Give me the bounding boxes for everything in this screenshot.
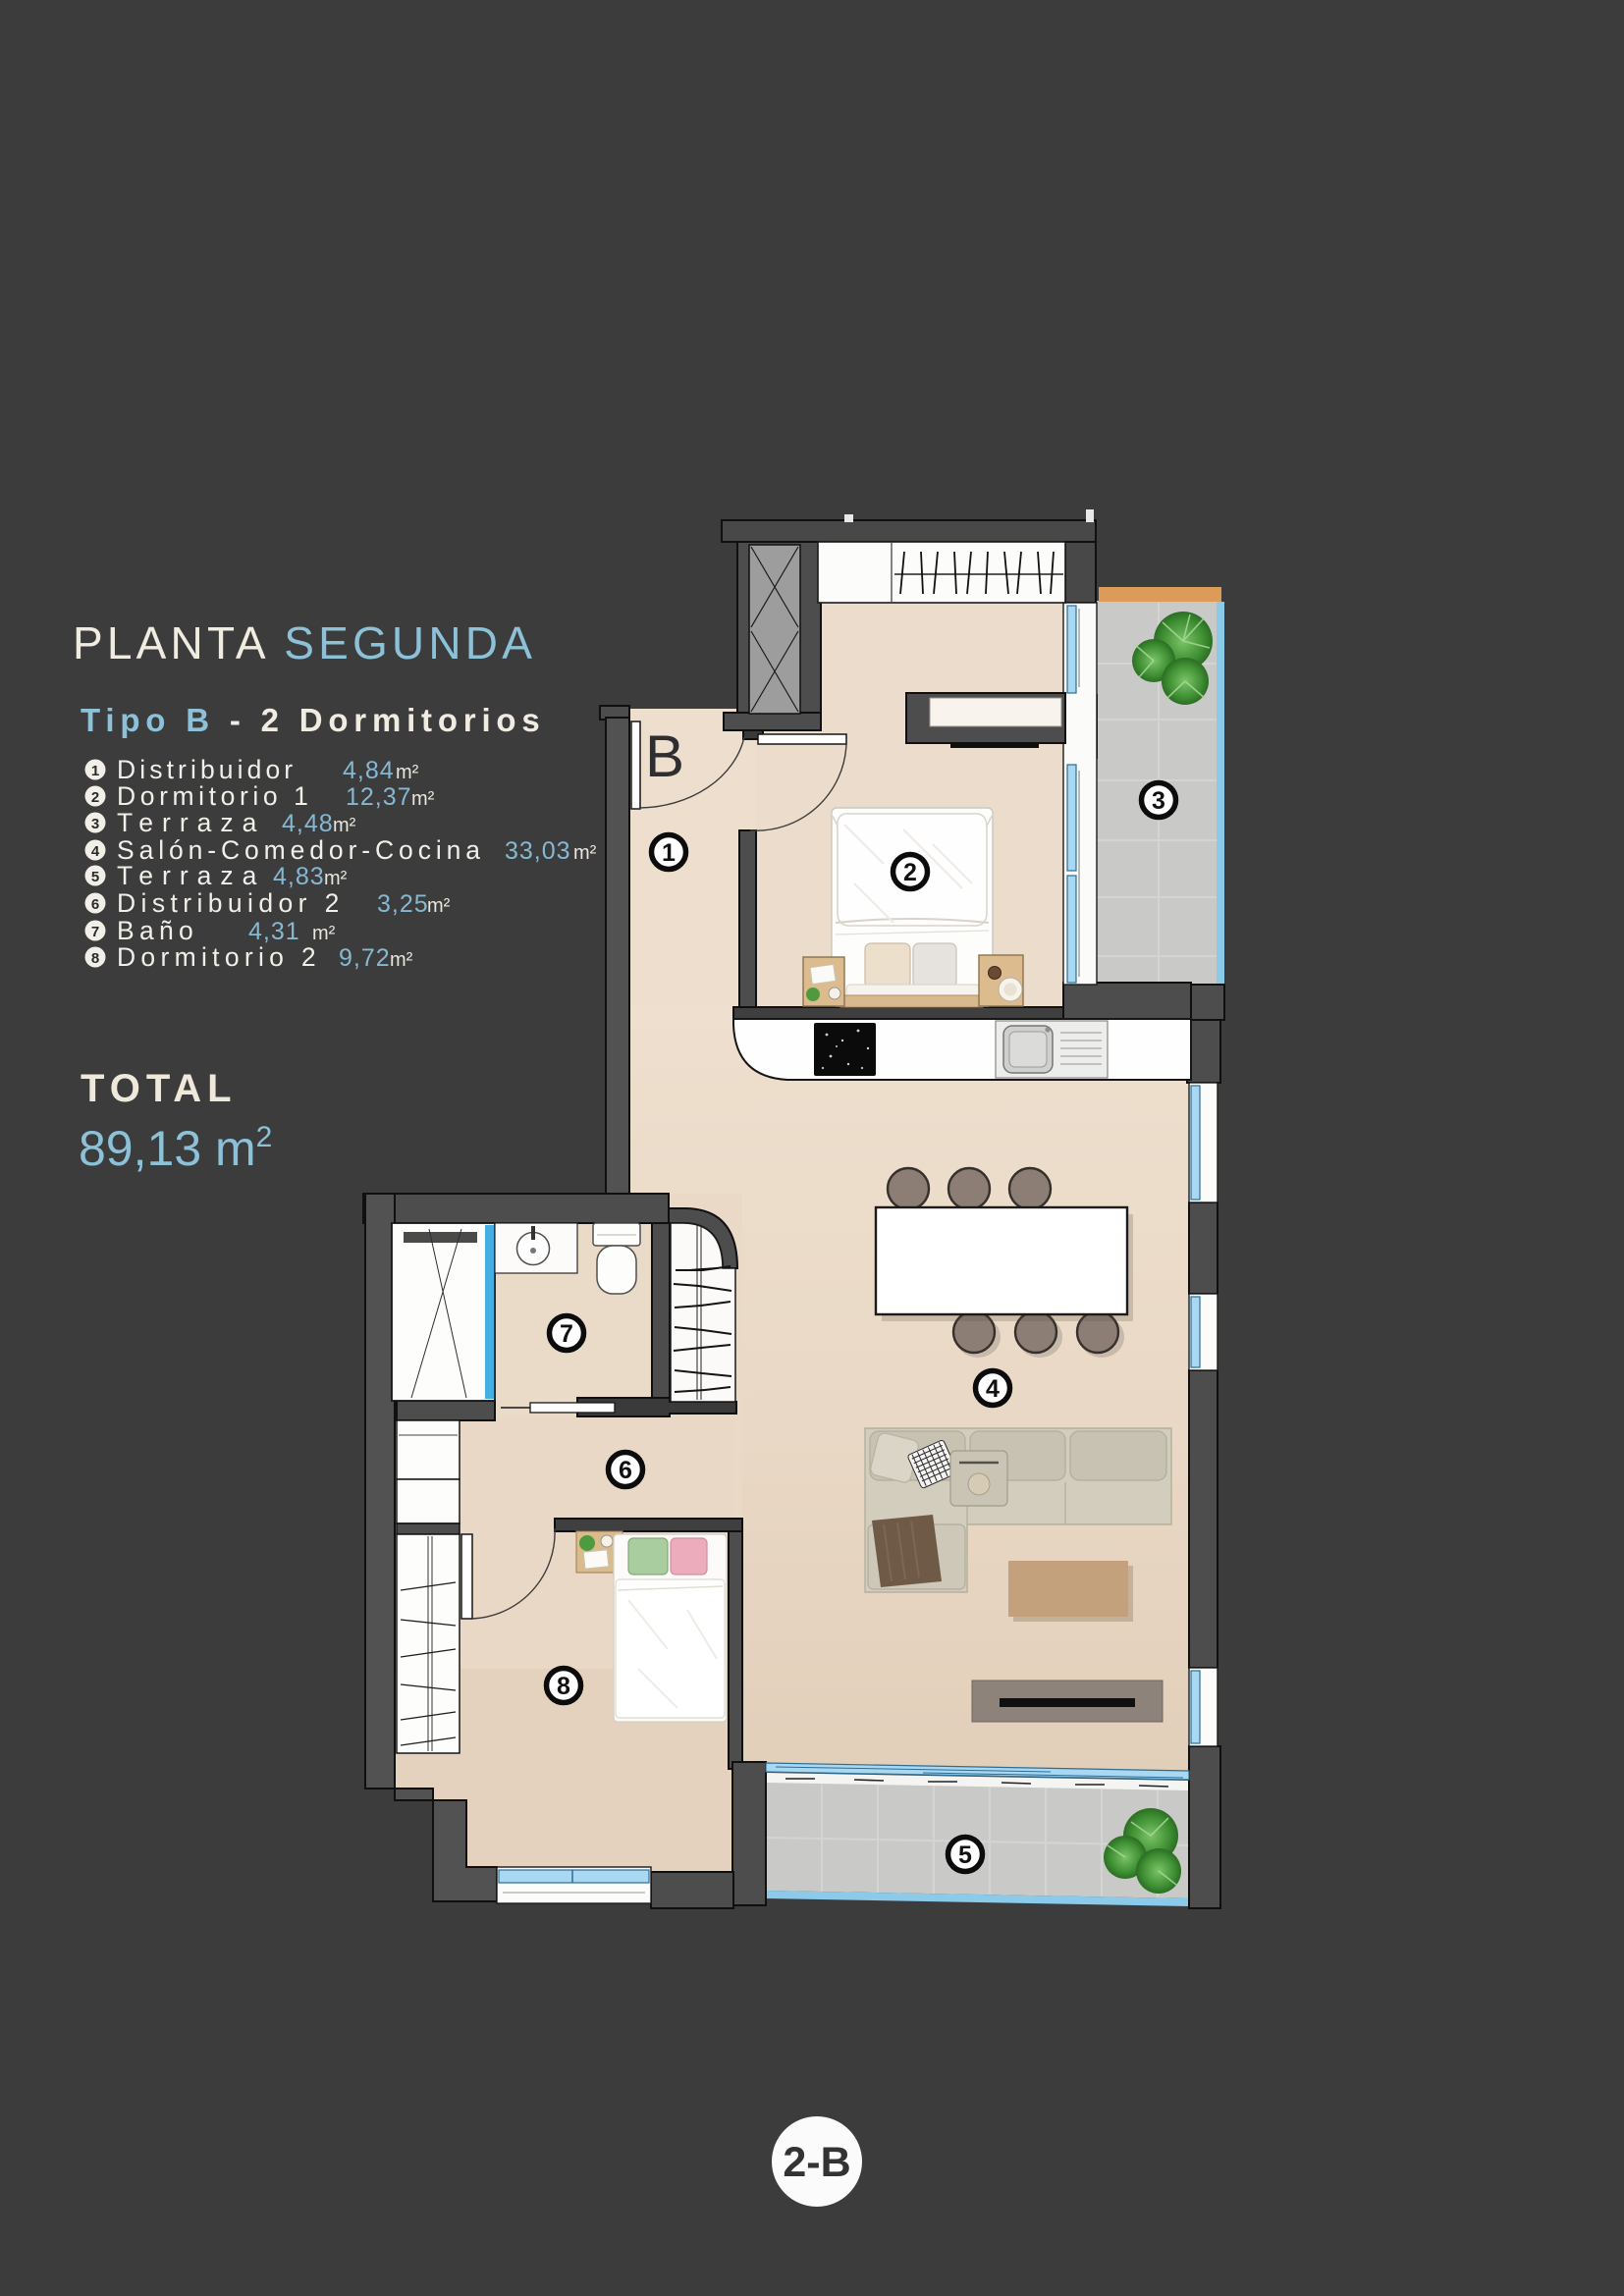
svg-text:3: 3 — [1152, 787, 1165, 815]
svg-text:4: 4 — [986, 1375, 1000, 1403]
svg-text:m²: m² — [324, 868, 348, 889]
svg-text:12,37: 12,37 — [346, 783, 412, 811]
svg-text:TOTAL: TOTAL — [81, 1067, 238, 1110]
svg-text:8: 8 — [557, 1673, 570, 1700]
svg-text:7: 7 — [91, 924, 99, 940]
svg-text:m²: m² — [396, 762, 419, 783]
svg-text:Terraza: Terraza — [117, 861, 265, 890]
svg-text:3: 3 — [91, 816, 99, 832]
svg-text:3,25: 3,25 — [377, 890, 429, 918]
svg-text:Dormitorio 2: Dormitorio 2 — [117, 942, 321, 972]
svg-text:Distribuidor: Distribuidor — [117, 755, 297, 784]
svg-text:1: 1 — [662, 839, 676, 867]
svg-text:33,03: 33,03 — [505, 837, 571, 865]
svg-text:4,31: 4,31 — [248, 918, 300, 945]
svg-text:Distribuidor 2: Distribuidor 2 — [117, 888, 345, 918]
svg-text:1: 1 — [91, 763, 99, 779]
svg-text:PLANTA SEGUNDA: PLANTA SEGUNDA — [73, 617, 536, 668]
svg-text:Dormitorio 1: Dormitorio 1 — [117, 781, 313, 811]
svg-text:4: 4 — [91, 843, 100, 860]
svg-text:2: 2 — [91, 789, 99, 806]
svg-text:4,48: 4,48 — [282, 810, 334, 837]
svg-text:Baño: Baño — [117, 916, 198, 945]
svg-text:m²: m² — [333, 815, 356, 836]
svg-text:7: 7 — [560, 1320, 573, 1348]
svg-text:Terraza: Terraza — [117, 808, 265, 837]
svg-text:89,13 m2: 89,13 m2 — [79, 1121, 272, 1176]
svg-text:2: 2 — [903, 859, 917, 886]
svg-text:5: 5 — [958, 1842, 972, 1869]
svg-text:m²: m² — [427, 895, 451, 917]
svg-text:Tipo B - 2 Dormitorios: Tipo B - 2 Dormitorios — [81, 702, 546, 738]
svg-text:9,72: 9,72 — [339, 944, 391, 972]
svg-text:m²: m² — [411, 788, 435, 810]
svg-text:8: 8 — [91, 950, 99, 967]
svg-text:2-B: 2-B — [783, 2139, 850, 2186]
svg-text:4,84: 4,84 — [343, 757, 395, 784]
svg-text:6: 6 — [91, 896, 99, 913]
svg-text:B: B — [645, 723, 684, 789]
svg-text:m²: m² — [573, 842, 597, 864]
svg-text:4,83: 4,83 — [273, 863, 325, 890]
svg-text:m²: m² — [312, 923, 336, 944]
svg-text:5: 5 — [91, 869, 99, 885]
svg-text:6: 6 — [619, 1457, 632, 1484]
svg-text:m²: m² — [390, 949, 413, 971]
